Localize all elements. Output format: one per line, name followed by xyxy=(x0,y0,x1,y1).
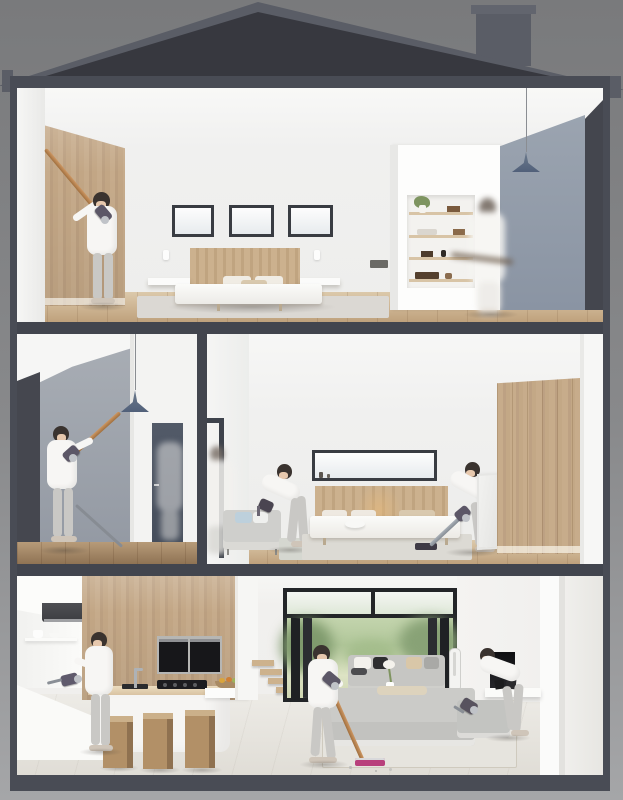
floor-debris-dots xyxy=(375,770,377,772)
oven-left xyxy=(159,639,188,672)
fan-loop-slot xyxy=(453,652,456,676)
person-legs xyxy=(161,510,179,540)
house-wall-left xyxy=(10,76,17,791)
small-window-2 xyxy=(229,205,274,237)
person-leg xyxy=(64,488,73,537)
house-top-beam xyxy=(10,76,610,88)
vacuum-bin xyxy=(470,706,478,714)
person-vacuuming-high xyxy=(43,424,81,554)
pendant-cord-middle xyxy=(135,334,136,390)
floating-step xyxy=(260,669,282,675)
shelf-tray xyxy=(415,272,439,279)
wall-niche xyxy=(370,260,388,268)
person-body xyxy=(469,212,505,284)
transom-pane-right xyxy=(375,592,453,614)
window-sill-object xyxy=(319,472,323,478)
flower-bloom xyxy=(383,660,395,669)
letterbox-window xyxy=(312,450,437,481)
person-legs xyxy=(477,282,501,312)
shelf-box-brown xyxy=(447,206,460,212)
sofa-pillow-grey xyxy=(424,657,439,669)
oven-right xyxy=(190,639,220,672)
shelf-pot xyxy=(445,273,452,279)
open-shelf-dishes xyxy=(25,638,77,641)
fruit xyxy=(219,678,225,683)
floor-slab-upper xyxy=(17,322,603,334)
floor-debris-dots xyxy=(349,766,352,769)
person-torso-bent xyxy=(477,653,522,683)
vacuum-bin xyxy=(74,675,82,683)
wood-stool-3 xyxy=(185,710,215,768)
wall-sconce-right xyxy=(314,250,320,260)
shelf-ornament xyxy=(441,250,446,257)
middle-partition-wall xyxy=(197,334,207,564)
charcoal-wall-strip xyxy=(585,100,603,310)
person-leg xyxy=(511,684,523,733)
sofa-leg xyxy=(227,549,229,555)
white-column xyxy=(540,576,565,775)
transom-pane-left xyxy=(287,592,371,614)
bed-leg-left xyxy=(217,304,220,311)
person-walking-blurred xyxy=(463,198,517,318)
person-shadow xyxy=(485,734,531,742)
walker-shadow xyxy=(463,310,519,319)
hob-burner xyxy=(173,683,177,687)
person-shadow xyxy=(79,302,127,311)
vacuum-bin xyxy=(331,682,339,690)
person-shadow xyxy=(39,546,89,555)
vacuum-bin xyxy=(101,216,109,224)
bed-mattress xyxy=(175,284,322,304)
top-left-white-wall xyxy=(17,88,45,322)
transom-mullion xyxy=(371,592,375,614)
bed-leg xyxy=(323,538,326,545)
shelf-dishes xyxy=(417,229,437,235)
person-leg xyxy=(104,253,113,300)
room-top-floor xyxy=(17,88,603,322)
tower-fan xyxy=(449,648,461,692)
divider-wall xyxy=(235,576,258,700)
person-leg xyxy=(53,488,62,537)
house-wall-right xyxy=(603,76,610,791)
person-torso xyxy=(85,646,113,695)
vacuum-head-pink xyxy=(355,758,385,766)
person-kitchen-counter xyxy=(83,632,117,750)
faucet xyxy=(134,668,137,688)
wood-stool-2 xyxy=(143,713,173,769)
hob-burner xyxy=(163,683,167,687)
wardrobe-base-glow xyxy=(497,546,580,553)
shelf-vase xyxy=(419,205,426,213)
sofa-pillow-tan xyxy=(406,657,422,669)
room-middle-left xyxy=(17,334,197,564)
shelf-dark-box xyxy=(421,251,433,257)
white-jug xyxy=(33,630,43,638)
person-shadow xyxy=(79,748,123,756)
wall-sconce-left xyxy=(163,250,169,260)
right-white-column xyxy=(580,334,603,564)
oak-wardrobe-wall xyxy=(497,378,580,554)
small-window-3 xyxy=(288,205,333,237)
person-leg xyxy=(321,707,336,760)
faucet-spout xyxy=(134,668,143,671)
person-leg xyxy=(101,694,110,746)
figure-blur-doorway xyxy=(155,432,185,544)
person-shadow xyxy=(299,760,349,769)
cutaway-house-illustration xyxy=(0,0,623,800)
hob-burner xyxy=(183,683,187,687)
person-body xyxy=(157,442,183,512)
person-vacuuming-sofa-chaise xyxy=(475,642,525,740)
room-ground-floor xyxy=(17,576,603,775)
round-side-table xyxy=(345,520,365,528)
folded-door-panels-left xyxy=(291,618,300,700)
vacuum-bin xyxy=(462,514,470,522)
sofa-pillow-blue xyxy=(235,512,252,523)
handheld-nozzle xyxy=(257,506,260,516)
floor-slab-lower xyxy=(17,564,603,576)
window-sill-object xyxy=(327,474,330,478)
pendant-cord-top xyxy=(526,88,527,152)
person-vacuuming-living-floor xyxy=(305,645,341,767)
far-right-wall xyxy=(565,576,603,775)
bed-leg-right xyxy=(279,304,282,311)
sofa-throw-dark xyxy=(351,668,367,675)
person-feet xyxy=(51,536,77,542)
chimney-cap xyxy=(471,5,536,14)
person-leg xyxy=(91,694,100,745)
house-base xyxy=(10,775,610,791)
sofa-blanket xyxy=(377,686,427,695)
floating-step xyxy=(252,660,274,666)
room-middle-right xyxy=(207,334,603,564)
hob-burner xyxy=(193,683,197,687)
vacuum-bin xyxy=(69,454,77,462)
small-window-1 xyxy=(172,205,214,237)
range-hood-light xyxy=(44,619,83,622)
person-leg xyxy=(93,253,102,300)
charcoal-wedge-wall xyxy=(17,372,40,552)
floor-debris-dots xyxy=(389,768,392,771)
